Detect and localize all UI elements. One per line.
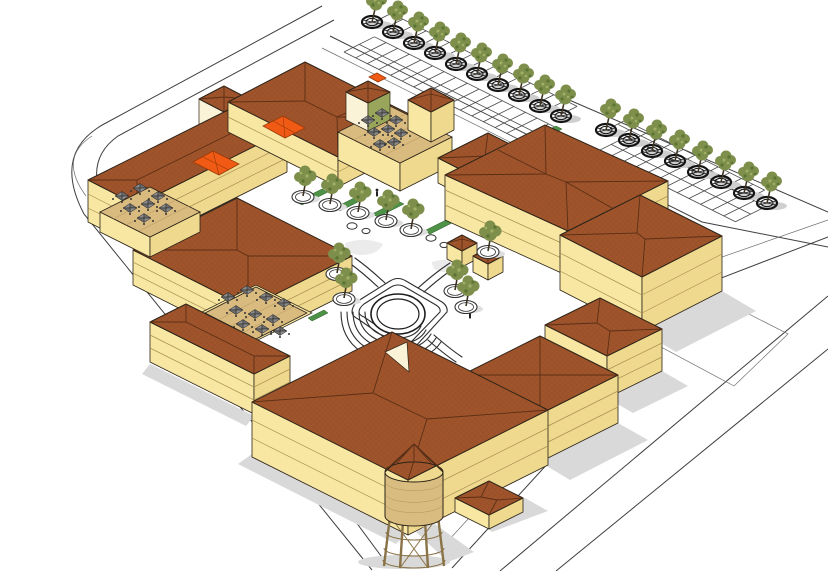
site-rendering-canvas — [0, 0, 828, 571]
site-rendering-stage — [0, 0, 828, 571]
awning-small — [369, 73, 386, 82]
pedestrian-figure — [376, 189, 379, 197]
tower-right — [408, 88, 454, 142]
